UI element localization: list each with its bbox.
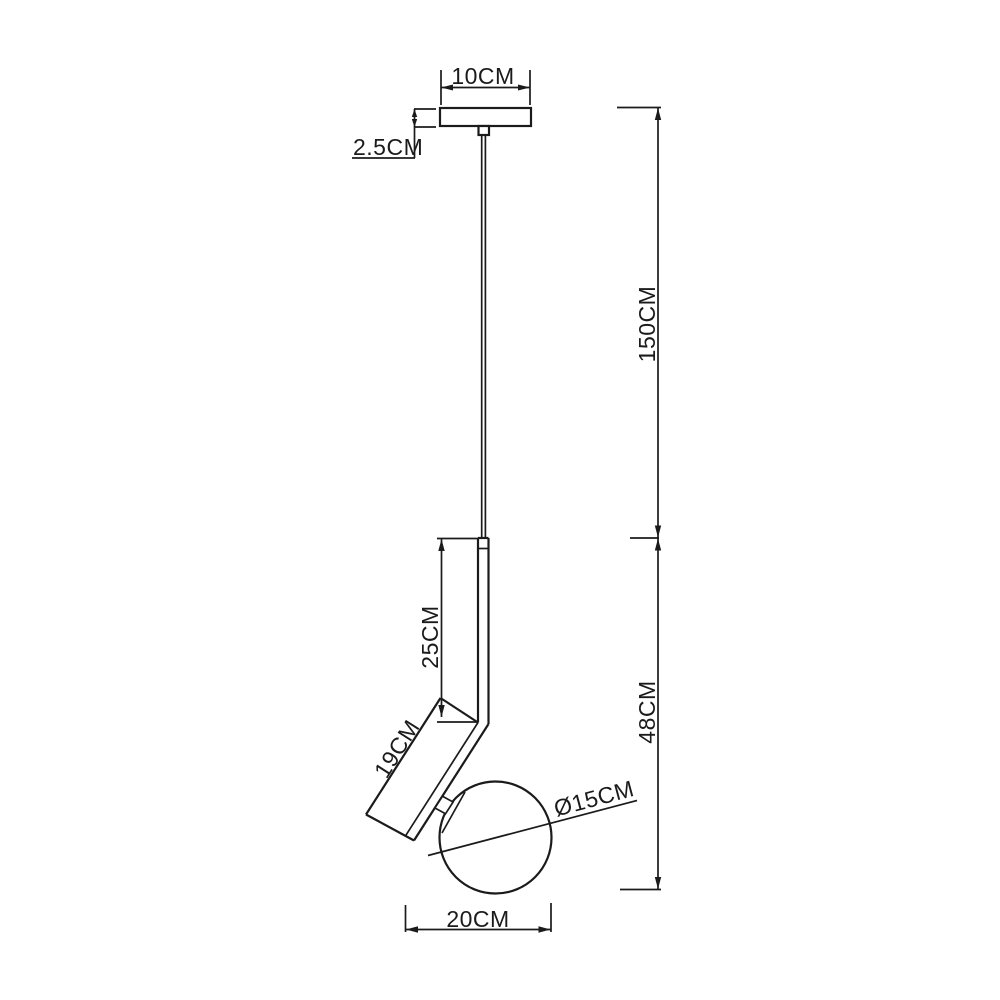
globe-diameter-label: Ø15CM: [551, 775, 637, 821]
ceiling-canopy: [440, 108, 531, 135]
upper-tube-label: 25CM: [417, 605, 443, 668]
angled-tube-label: 19CM: [369, 715, 425, 782]
vertical-tube: [478, 538, 489, 724]
tube-joint: [441, 698, 479, 723]
dim-suspension-height: 150CM: [617, 108, 661, 539]
pendant-lamp-diagram: 10CM 2.5CM 150CM 48CM 25CM 19C: [0, 0, 1000, 1000]
dim-angled-tube: 19CM: [369, 715, 425, 782]
canopy-thickness-label: 2.5CM: [353, 134, 423, 160]
dimension-drawing-canvas: 10CM 2.5CM 150CM 48CM 25CM 19C: [0, 0, 1000, 1000]
suspension-cord: [482, 135, 486, 538]
dim-upper-tube: 25CM: [417, 539, 478, 723]
suspension-height-label: 150CM: [634, 286, 660, 363]
body-width-label: 20CM: [446, 906, 509, 932]
canopy-width-label: 10CM: [451, 63, 514, 89]
dim-canopy-thickness: 2.5CM: [352, 109, 436, 160]
canopy-stem: [479, 126, 490, 135]
body-height-label: 48CM: [634, 680, 660, 743]
dim-canopy-width: 10CM: [441, 63, 530, 105]
dim-body-height: 48CM: [620, 538, 661, 890]
dim-body-width: 20CM: [406, 903, 552, 933]
